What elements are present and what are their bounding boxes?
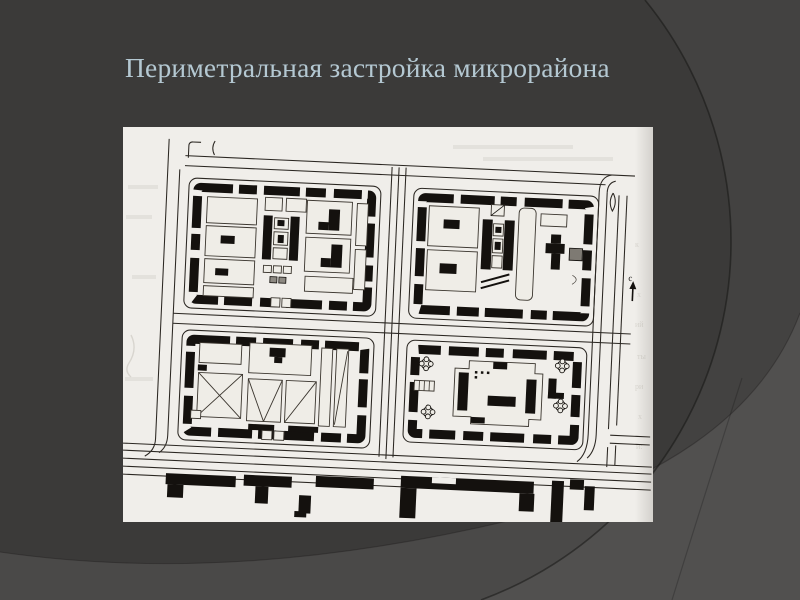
page-edge-shadow [635,127,653,522]
block-top-left [184,178,382,317]
slide-title: Периметральная застройка микрорайона [125,52,685,84]
north-label: с [628,273,632,283]
block-bottom-left [178,330,375,449]
block-top-right [408,188,599,326]
city-plan-svg: к х ий ты ри х и: [123,127,653,522]
city-plan-figure: к х ий ты ри х и: [123,127,653,522]
city-plan: с [123,137,653,522]
block-bottom-right [403,340,587,450]
north-arrow-shaft [632,288,633,301]
presentation-slide: Периметральная застройка микрорайона к х… [0,0,800,600]
